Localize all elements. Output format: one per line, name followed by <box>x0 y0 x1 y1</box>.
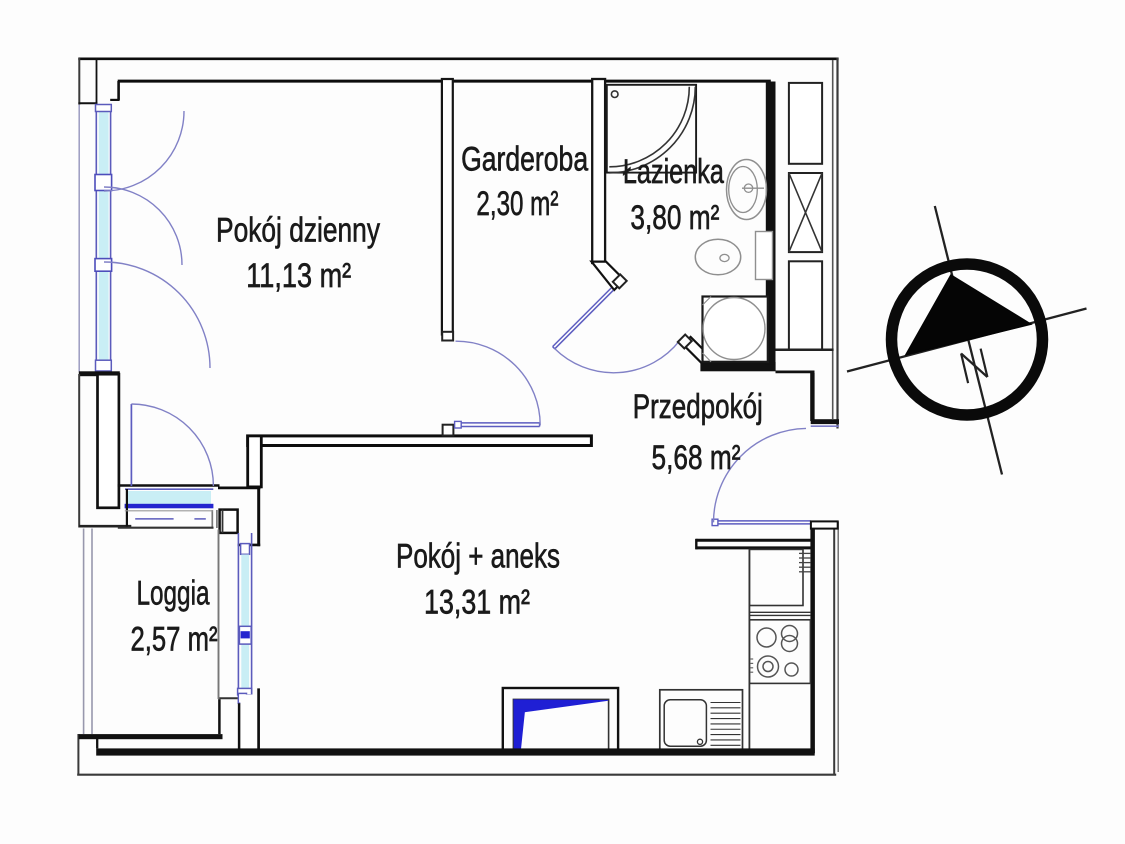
svg-text:5,68 m²: 5,68 m² <box>652 439 741 477</box>
svg-text:Pokój dzienny: Pokój dzienny <box>216 212 381 250</box>
svg-text:Przedpokój: Przedpokój <box>633 388 763 426</box>
svg-text:Loggia: Loggia <box>137 575 211 613</box>
svg-text:Łazienka: Łazienka <box>623 153 725 191</box>
svg-text:2,30 m²: 2,30 m² <box>476 185 558 223</box>
svg-text:2,57 m²: 2,57 m² <box>131 621 218 659</box>
svg-text:11,13 m²: 11,13 m² <box>246 257 351 295</box>
svg-text:Pokój + aneks: Pokój + aneks <box>396 538 560 576</box>
svg-text:13,31 m²: 13,31 m² <box>424 584 530 622</box>
svg-text:3,80 m²: 3,80 m² <box>630 199 719 237</box>
svg-text:Garderoba: Garderoba <box>461 141 589 179</box>
